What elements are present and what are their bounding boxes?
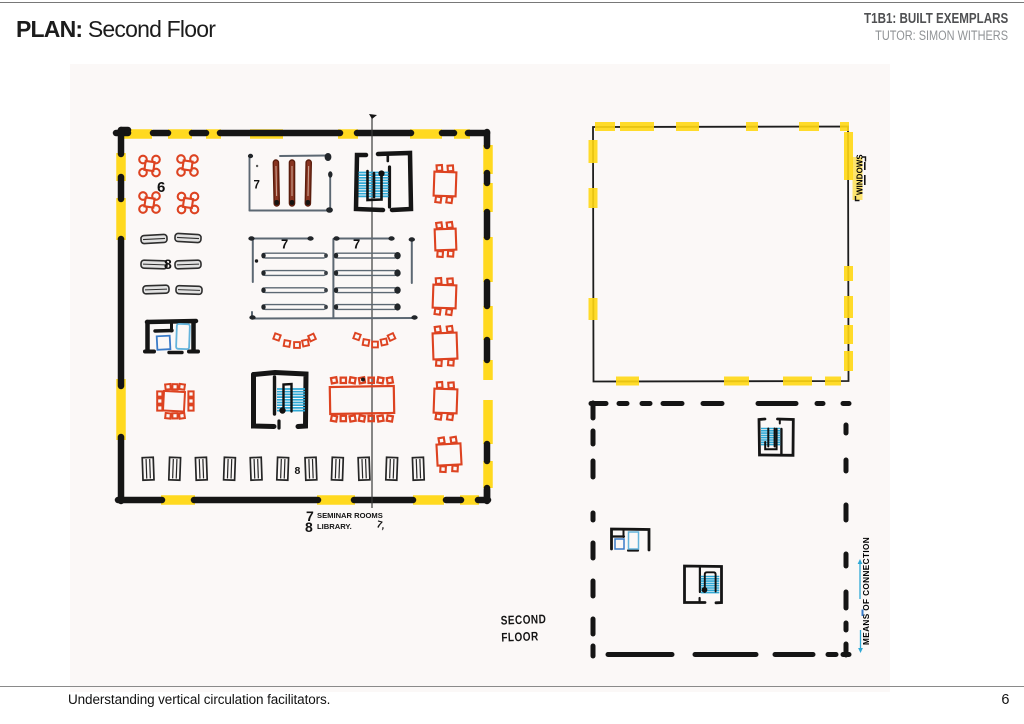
svg-text:8: 8 [295,465,301,477]
svg-text:8: 8 [164,256,172,272]
svg-text:MEANS OF CONNECTION: MEANS OF CONNECTION [862,537,871,645]
svg-text:SECOND: SECOND [501,613,547,628]
svg-text:8: 8 [305,519,313,535]
svg-text:6: 6 [157,179,165,196]
svg-text:7: 7 [353,237,360,252]
svg-text:WINDOWS: WINDOWS [856,154,865,195]
svg-text:7: 7 [281,237,288,252]
svg-text:FLOOR: FLOOR [501,630,539,645]
svg-text:7: 7 [254,180,260,192]
svg-text:LIBRARY.: LIBRARY. [317,522,352,531]
svg-text:SEMINAR ROOMS: SEMINAR ROOMS [317,511,383,520]
